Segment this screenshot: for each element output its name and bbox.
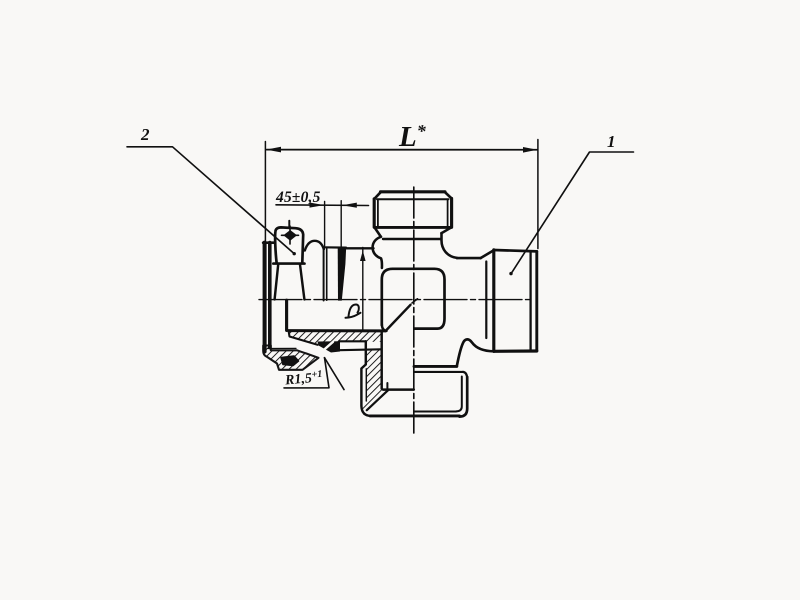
svg-text:1: 1 xyxy=(607,132,616,151)
svg-text:L*: L* xyxy=(398,121,427,153)
svg-text:45±0,5: 45±0,5 xyxy=(275,189,321,206)
svg-text:R1,5+1: R1,5+1 xyxy=(283,369,323,389)
svg-text:2: 2 xyxy=(140,125,150,144)
